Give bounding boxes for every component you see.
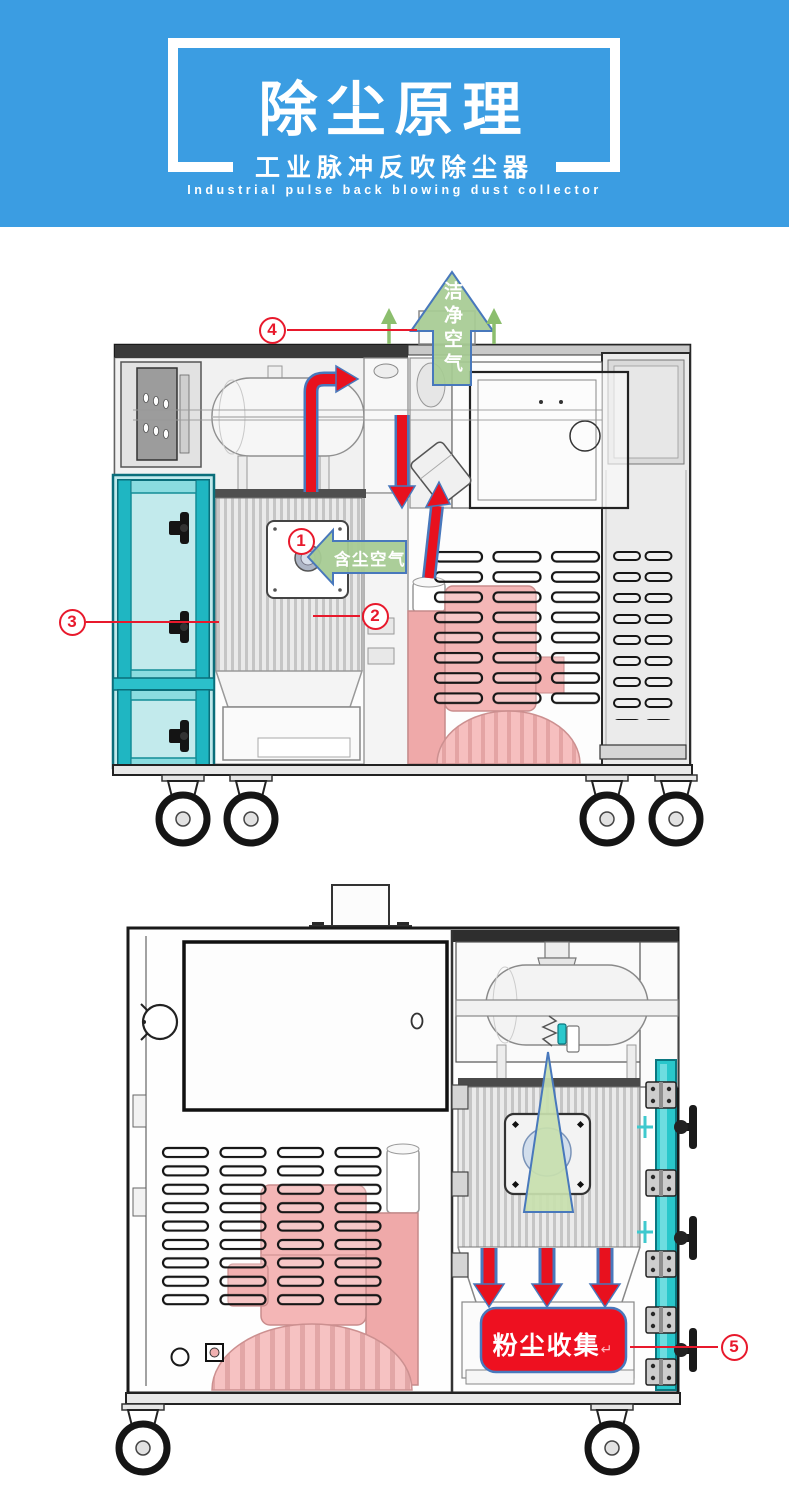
rotary-latch	[141, 1004, 177, 1040]
page: 除尘原理 工业脉冲反吹除尘器 Industrial pulse back blo…	[0, 0, 789, 1495]
dusty-air-label: 含尘空气	[334, 546, 406, 570]
hinge-icon	[646, 1170, 676, 1196]
hinge-icon	[646, 1251, 676, 1277]
vent-louvers-rear	[160, 1145, 390, 1311]
callout-3: 3	[59, 609, 86, 636]
page-title: 除尘原理	[0, 62, 789, 147]
page-subtitle: 工业脉冲反吹除尘器	[233, 146, 556, 186]
hinge-icon	[646, 1359, 676, 1385]
hopper-front	[216, 671, 362, 707]
caster-wheel	[119, 1404, 167, 1472]
dust-collection-label: 粉尘收集↵	[481, 1326, 626, 1362]
callout-4: 4	[259, 317, 286, 344]
caster-wheel	[159, 775, 207, 843]
caster-wheel	[227, 775, 275, 843]
header-banner: 除尘原理 工业脉冲反吹除尘器 Industrial pulse back blo…	[0, 0, 789, 227]
rear-door	[184, 942, 447, 1110]
up-arrow-icon	[381, 308, 397, 344]
machine-rear-view	[119, 885, 718, 1472]
exhaust-stack	[332, 885, 389, 928]
control-box	[121, 362, 201, 467]
hinge-icon	[646, 1307, 676, 1333]
top-beam	[115, 345, 408, 358]
hinge-icon	[646, 1082, 676, 1108]
clean-air-chamber	[452, 362, 628, 508]
caster-wheel	[652, 775, 700, 843]
callout-5: 5	[721, 1334, 748, 1361]
return-mark: ↵	[601, 1341, 615, 1357]
callout-2: 2	[362, 603, 389, 630]
page-subtitle-english: Industrial pulse back blowing dust colle…	[0, 183, 789, 197]
callout-1: 1	[288, 528, 315, 555]
clean-air-label: 洁净空气	[441, 281, 465, 385]
caster-wheel	[583, 775, 631, 843]
vent-louvers-front	[432, 548, 608, 710]
caster-wheel	[588, 1404, 636, 1472]
